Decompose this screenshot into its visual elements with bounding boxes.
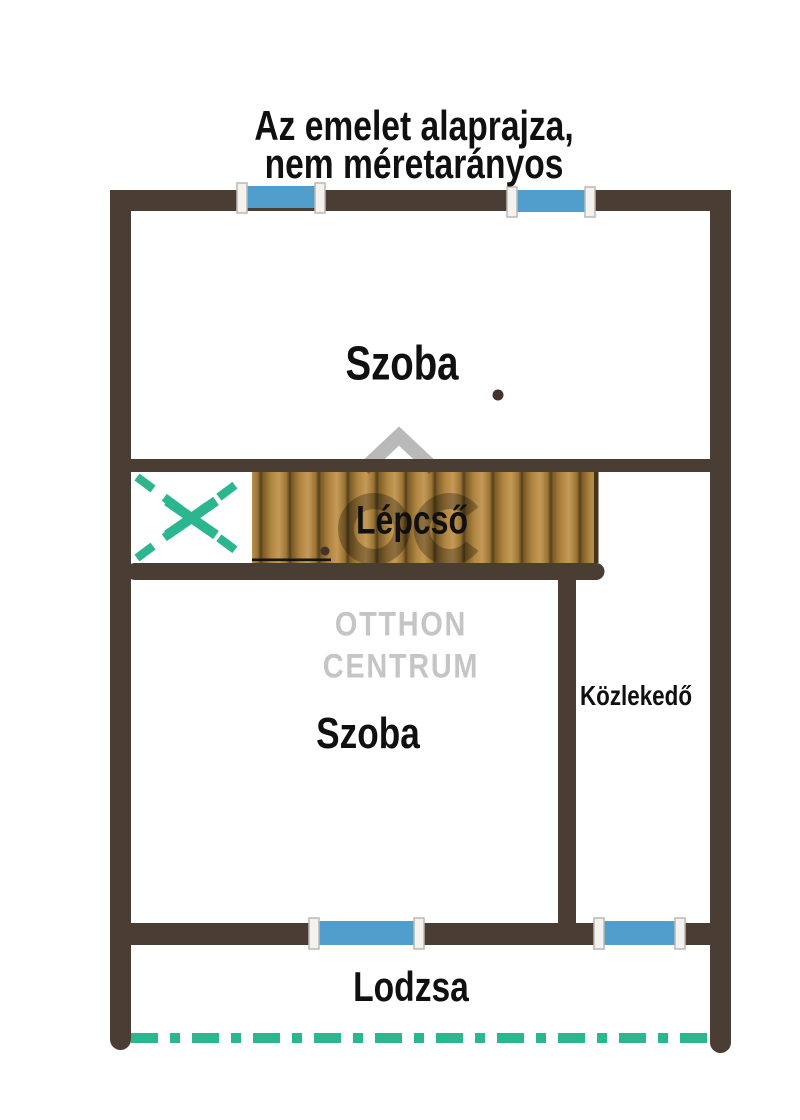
- window-top-right: [507, 187, 595, 217]
- watermark-text-line1: OTTHON: [335, 606, 467, 645]
- outer-wall-top: [110, 190, 731, 211]
- room-label-lodzsa: Lodzsa: [353, 963, 469, 1011]
- interior-wall-above-stairs: [124, 459, 716, 472]
- window-frame-cap: [507, 187, 517, 217]
- plan-dot-stairs: [321, 547, 330, 556]
- outer-wall-left: [110, 190, 131, 1050]
- page-title-line2: nem méretarányos: [265, 140, 564, 188]
- interior-wall-room-corridor: [558, 564, 576, 945]
- window-loggia-left: [309, 918, 424, 949]
- floor-plan-page: OTTHON CENTRUM Az emelet alaprajza, nem …: [0, 0, 800, 1120]
- window-frame-cap: [237, 183, 247, 213]
- window-frame-cap: [309, 918, 319, 949]
- window-frame-cap: [675, 918, 685, 949]
- stairs-bottom-step-line: [252, 559, 331, 562]
- stair-void-x-marker: [137, 477, 246, 558]
- watermark-text-line2: CENTRUM: [323, 648, 479, 687]
- window-frame-cap: [585, 187, 595, 217]
- window-loggia-right: [594, 918, 685, 949]
- room-label-lower-szoba: Szoba: [316, 709, 420, 759]
- plan-dot-upper-room: [493, 390, 504, 401]
- room-label-upper-szoba: Szoba: [345, 337, 458, 392]
- window-frame-cap: [414, 918, 424, 949]
- room-label-lepcso: Lépcső: [356, 499, 468, 544]
- window-frame-cap: [594, 918, 604, 949]
- stairs-right-edge: [594, 472, 599, 563]
- room-label-kozlekedo: Közlekedő: [580, 680, 692, 712]
